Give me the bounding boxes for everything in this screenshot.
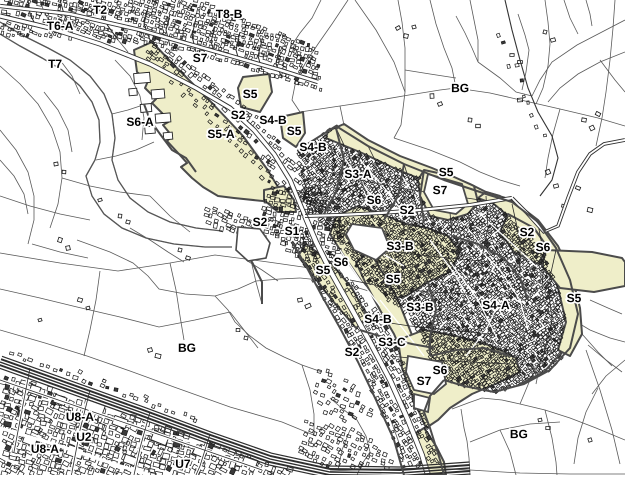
svg-text:S3-C: S3-C	[378, 335, 406, 349]
svg-text:U8-A: U8-A	[31, 442, 59, 456]
svg-text:S1: S1	[285, 224, 300, 238]
svg-text:S2: S2	[520, 225, 535, 239]
svg-text:BG: BG	[178, 341, 196, 355]
svg-text:S4-B: S4-B	[259, 113, 287, 127]
svg-text:S4-A: S4-A	[482, 298, 510, 312]
svg-text:T7: T7	[48, 57, 62, 71]
svg-text:S5: S5	[386, 272, 401, 286]
svg-text:S5: S5	[567, 291, 582, 305]
svg-text:S7: S7	[193, 51, 208, 65]
svg-text:U2: U2	[76, 430, 92, 444]
svg-text:S6: S6	[433, 363, 448, 377]
svg-text:BG: BG	[510, 427, 528, 441]
svg-text:S3-B: S3-B	[406, 300, 434, 314]
svg-text:S7: S7	[433, 183, 448, 197]
svg-text:BG: BG	[451, 81, 469, 95]
svg-text:S3-B: S3-B	[386, 239, 414, 253]
svg-text:S3-A: S3-A	[344, 167, 372, 181]
svg-text:T6-A: T6-A	[47, 19, 74, 33]
svg-text:T8-B: T8-B	[216, 7, 243, 21]
svg-text:S6-A: S6-A	[126, 115, 154, 129]
svg-text:S7: S7	[417, 374, 432, 388]
svg-text:S2: S2	[253, 215, 268, 229]
svg-text:U8-A: U8-A	[66, 410, 94, 424]
svg-text:U7: U7	[175, 457, 191, 471]
svg-text:S4-B: S4-B	[364, 312, 392, 326]
svg-text:S2: S2	[345, 345, 360, 359]
svg-text:S2: S2	[231, 108, 246, 122]
svg-text:T2: T2	[93, 3, 107, 17]
svg-text:S6: S6	[536, 240, 551, 254]
svg-text:S2: S2	[400, 203, 415, 217]
svg-text:S5: S5	[316, 263, 331, 277]
svg-text:S6: S6	[334, 255, 349, 269]
svg-text:S4-B: S4-B	[299, 140, 327, 154]
svg-text:S5: S5	[287, 124, 302, 138]
svg-text:S5-A: S5-A	[207, 127, 235, 141]
svg-text:S5: S5	[243, 87, 258, 101]
svg-text:S6: S6	[367, 193, 382, 207]
svg-text:S5: S5	[439, 165, 454, 179]
